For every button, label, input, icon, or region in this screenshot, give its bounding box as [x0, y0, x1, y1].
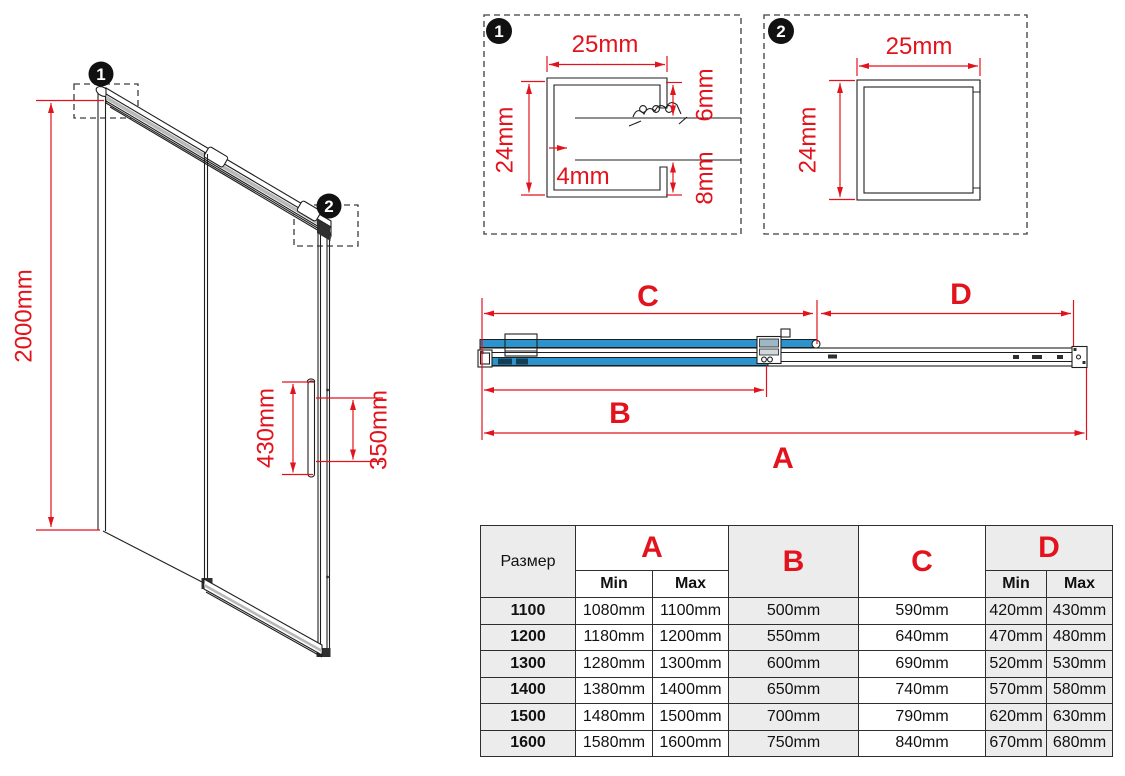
- column-d-header: D: [986, 526, 1113, 571]
- cell-size: 1600: [481, 730, 576, 757]
- size-row: 1200 1180mm 1200mm 550mm 640mm 470mm 480…: [481, 624, 1113, 651]
- detail-1-top-inset-label: 6mm: [692, 68, 719, 121]
- column-c-header: C: [859, 526, 986, 598]
- detail-2-badge-number: 2: [776, 22, 785, 41]
- detail-2-badge: 2: [768, 18, 794, 44]
- cell-a-max: 1100mm: [653, 598, 729, 625]
- cell-d-min: 420mm: [986, 598, 1047, 625]
- cell-a-max: 1300mm: [653, 651, 729, 678]
- cell-b: 650mm: [729, 677, 859, 704]
- cell-c: 790mm: [859, 704, 986, 731]
- cell-d-min: 520mm: [986, 651, 1047, 678]
- cell-b: 600mm: [729, 651, 859, 678]
- handle-outer-label: 430mm: [253, 388, 280, 468]
- detail-1-width-label: 25mm: [572, 31, 639, 58]
- d-min-header: Min: [986, 571, 1047, 598]
- dimension-b-label: B: [609, 397, 631, 430]
- dimension-a-label: A: [772, 442, 794, 475]
- cell-a-max: 1500mm: [653, 704, 729, 731]
- detail-1-top-inset-dimension: 6mm: [666, 68, 719, 121]
- size-column-header: Размер: [481, 526, 576, 598]
- cell-b: 550mm: [729, 624, 859, 651]
- cell-d-max: 680mm: [1047, 730, 1113, 757]
- detail-2-height-label: 24mm: [795, 107, 822, 174]
- badge-2: 2: [317, 194, 342, 219]
- detail-2-height-dimension: 24mm: [795, 81, 856, 200]
- cell-d-min: 570mm: [986, 677, 1047, 704]
- table-header-row: Размер A B C D: [481, 526, 1113, 571]
- dimension-b: B: [484, 390, 764, 430]
- profile-detail-1: 1 25mm 24mm: [483, 14, 742, 235]
- detail-1-height-dimension: 24mm: [492, 82, 546, 196]
- bottom-rail: [103, 531, 322, 657]
- plan-wall-profile: [478, 350, 492, 367]
- cell-a-max: 1200mm: [653, 624, 729, 651]
- cell-a-min: 1080mm: [576, 598, 653, 625]
- height-dimension: 2000mm: [11, 101, 105, 531]
- column-b-header: B: [729, 526, 859, 598]
- shower-door-schematic: 1 2 2000mm 430mm 350mm: [0, 0, 1125, 776]
- gasket-seal: [629, 103, 687, 126]
- cell-d-max: 530mm: [1047, 651, 1113, 678]
- door-handle: [307, 379, 314, 477]
- detail-1-bottom-inset-label: 8mm: [692, 151, 719, 204]
- cell-a-min: 1480mm: [576, 704, 653, 731]
- cell-c: 840mm: [859, 730, 986, 757]
- size-row: 1300 1280mm 1300mm 600mm 690mm 520mm 530…: [481, 651, 1113, 678]
- cell-d-min: 670mm: [986, 730, 1047, 757]
- cell-c: 690mm: [859, 651, 986, 678]
- detail-2-width-label: 25mm: [886, 33, 953, 60]
- cell-size: 1200: [481, 624, 576, 651]
- cell-d-max: 580mm: [1047, 677, 1113, 704]
- handle-outer-dimension: 430mm: [253, 382, 314, 475]
- detail-1-bottom-inset-dimension: 8mm: [666, 151, 719, 204]
- profile-detail-2: 2 25mm 24mm: [763, 14, 1028, 235]
- cell-b: 750mm: [729, 730, 859, 757]
- size-row: 1400 1380mm 1400mm 650mm 740mm 570mm 580…: [481, 677, 1113, 704]
- cell-d-max: 630mm: [1047, 704, 1113, 731]
- cell-a-max: 1400mm: [653, 677, 729, 704]
- detail-1-glass-label: 4mm: [556, 163, 609, 190]
- d-max-header: Max: [1047, 571, 1113, 598]
- cell-a-max: 1600mm: [653, 730, 729, 757]
- cell-size: 1500: [481, 704, 576, 731]
- square-profile-shape: [857, 80, 980, 200]
- badge-1-number: 1: [96, 65, 105, 84]
- dimension-c-label: C: [637, 280, 659, 313]
- height-dimension-label: 2000mm: [11, 269, 38, 362]
- extension-lines: [482, 298, 1087, 440]
- cell-d-max: 480mm: [1047, 624, 1113, 651]
- detail-1-width-dimension: 25mm: [547, 31, 667, 72]
- size-row: 1500 1480mm 1500mm 700mm 790mm 620mm 630…: [481, 704, 1113, 731]
- dimension-d: D: [821, 278, 1071, 314]
- dimension-c: C: [484, 280, 813, 314]
- a-max-header: Max: [653, 571, 729, 598]
- a-min-header: Min: [576, 571, 653, 598]
- size-row: 1600 1580mm 1600mm 750mm 840mm 670mm 680…: [481, 730, 1113, 757]
- column-a-header: A: [576, 526, 729, 571]
- detail-1-glass-dimension: 4mm: [549, 148, 610, 190]
- cell-a-min: 1180mm: [576, 624, 653, 651]
- cell-size: 1100: [481, 598, 576, 625]
- cell-a-min: 1280mm: [576, 651, 653, 678]
- detail-1-badge-number: 1: [494, 22, 503, 41]
- detail-1-badge: 1: [486, 18, 512, 44]
- size-row: 1100 1080mm 1100mm 500mm 590mm 420mm 430…: [481, 598, 1113, 625]
- cell-b: 700mm: [729, 704, 859, 731]
- cell-a-min: 1580mm: [576, 730, 653, 757]
- cell-a-min: 1380mm: [576, 677, 653, 704]
- cell-d-min: 620mm: [986, 704, 1047, 731]
- size-table: Размер A B C D Min Max Min Max 1100 1080…: [480, 525, 1113, 757]
- cell-size: 1300: [481, 651, 576, 678]
- cell-c: 590mm: [859, 598, 986, 625]
- fixed-panel-edge: [202, 152, 213, 589]
- cell-d-max: 430mm: [1047, 598, 1113, 625]
- dimension-d-label: D: [950, 278, 972, 311]
- cell-b: 500mm: [729, 598, 859, 625]
- track-plan-view: C D B A: [460, 270, 1125, 480]
- detail-1-height-label: 24mm: [492, 107, 519, 174]
- cell-size: 1400: [481, 677, 576, 704]
- fixed-glass-panel: [485, 358, 768, 366]
- right-end-cap: [1072, 347, 1087, 368]
- handle-inner-label: 350mm: [366, 390, 393, 470]
- badge-1: 1: [89, 62, 114, 87]
- door-isometric-view: 1 2 2000mm 430mm 350mm: [0, 0, 470, 776]
- door-right-edge: [317, 219, 331, 657]
- dimension-a: A: [484, 433, 1085, 475]
- wall-profile: [95, 85, 111, 531]
- cell-c: 740mm: [859, 677, 986, 704]
- detail-2-width-dimension: 25mm: [857, 33, 980, 76]
- badge-2-number: 2: [324, 197, 333, 216]
- cell-c: 640mm: [859, 624, 986, 651]
- cell-d-min: 470mm: [986, 624, 1047, 651]
